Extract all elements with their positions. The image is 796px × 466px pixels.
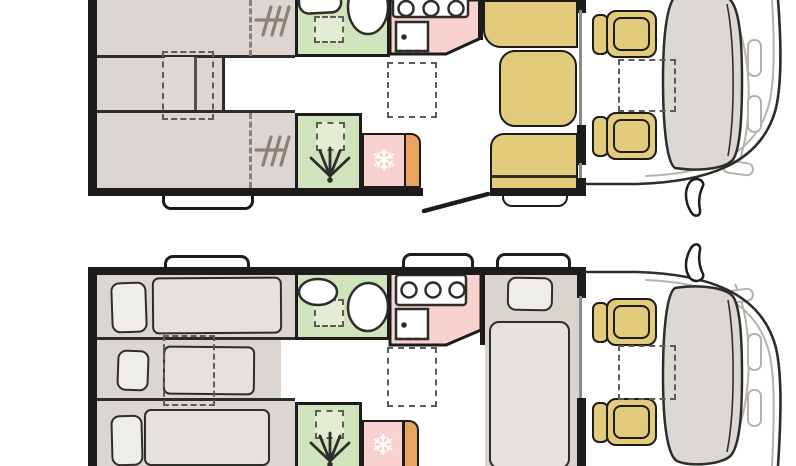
burner-icon [424, 1, 439, 16]
cab-seat-cushion [613, 305, 650, 339]
bed-mattress [152, 277, 282, 335]
snowflake-icon: ❄ [364, 135, 404, 187]
table-outline-dashed [387, 347, 437, 407]
kitchen-partition-wall [480, 273, 485, 345]
kitchen-sink [396, 309, 428, 339]
table-outline-dashed [387, 62, 437, 118]
motorhome-floorplan-diagram: ❄ [0, 0, 796, 466]
stove [393, 0, 468, 17]
bed-mattress [489, 321, 570, 466]
dinette-seat [499, 50, 577, 127]
wing-mirror-icon [686, 179, 703, 216]
washroom-cabinet-dashed [314, 299, 344, 327]
kitchen-counter [390, 273, 481, 345]
shower-tray-dashed [315, 410, 344, 439]
headlight [722, 160, 753, 176]
wall-right [577, 178, 586, 196]
grille-detail [748, 96, 761, 132]
fridge: ❄ [362, 420, 404, 466]
washroom-cabinet-dashed [314, 16, 344, 43]
stove [396, 275, 466, 305]
headlight [722, 288, 753, 304]
burner-icon [426, 283, 441, 298]
bed-mattress [144, 409, 270, 466]
grille-detail [748, 334, 761, 370]
bed-pillow [110, 281, 148, 333]
fridge-heater-unit [404, 133, 421, 188]
wall-right [577, 267, 586, 298]
kitchen-counter [390, 0, 481, 54]
wall-bottom [88, 188, 423, 196]
wall-left [88, 0, 97, 196]
floor-plan-top: ❄ [0, 0, 796, 224]
shower-tray-dashed [316, 122, 345, 151]
bed-extension-dashed [162, 51, 214, 120]
snowflake-icon: ❄ [364, 422, 402, 466]
wall-right [577, 398, 586, 466]
bed-pillow [507, 277, 554, 312]
travel-bench-seat [490, 133, 578, 190]
bed-extension-dashed [163, 335, 215, 406]
burner-icon [449, 1, 464, 16]
burner-icon [402, 283, 417, 298]
fridge-heater-unit [403, 420, 419, 466]
rear-bed-bottom [97, 113, 295, 188]
wing-mirror-icon [686, 244, 703, 281]
entry-door-swing [424, 194, 488, 211]
wall-top [88, 267, 585, 275]
window-line [579, 296, 582, 400]
kitchen-sink [396, 22, 428, 51]
cab-seat-cushion [613, 405, 650, 439]
bench-backrest-line [492, 175, 576, 178]
grille-detail [748, 40, 761, 76]
kitchen-partition-wall [478, 0, 483, 40]
swivel-seat-zone-dashed [618, 345, 676, 400]
bed-side-line [222, 58, 225, 111]
fridge: ❄ [362, 133, 406, 188]
wall-left [88, 267, 97, 466]
burner-icon [450, 283, 465, 298]
window-line [579, 10, 582, 128]
bed-pillow [110, 415, 143, 466]
bed-split-dashed-line [249, 0, 252, 56]
burner-icon [399, 1, 414, 16]
wall-right [577, 125, 586, 165]
cab-seat-cushion [613, 119, 650, 153]
bed-pillow [116, 349, 149, 391]
faucet-dot [401, 34, 407, 40]
wall-bottom [490, 188, 585, 196]
grille-detail [748, 390, 761, 426]
rear-bed-top [97, 0, 295, 56]
bed-split-dashed-line [249, 113, 252, 188]
floor-plan-bottom: ❄ [0, 240, 796, 466]
swivel-seat-zone-dashed [618, 59, 676, 112]
dinette-corner-bench [483, 0, 578, 48]
cab-seat-cushion [613, 17, 650, 51]
faucet-dot [401, 322, 407, 328]
